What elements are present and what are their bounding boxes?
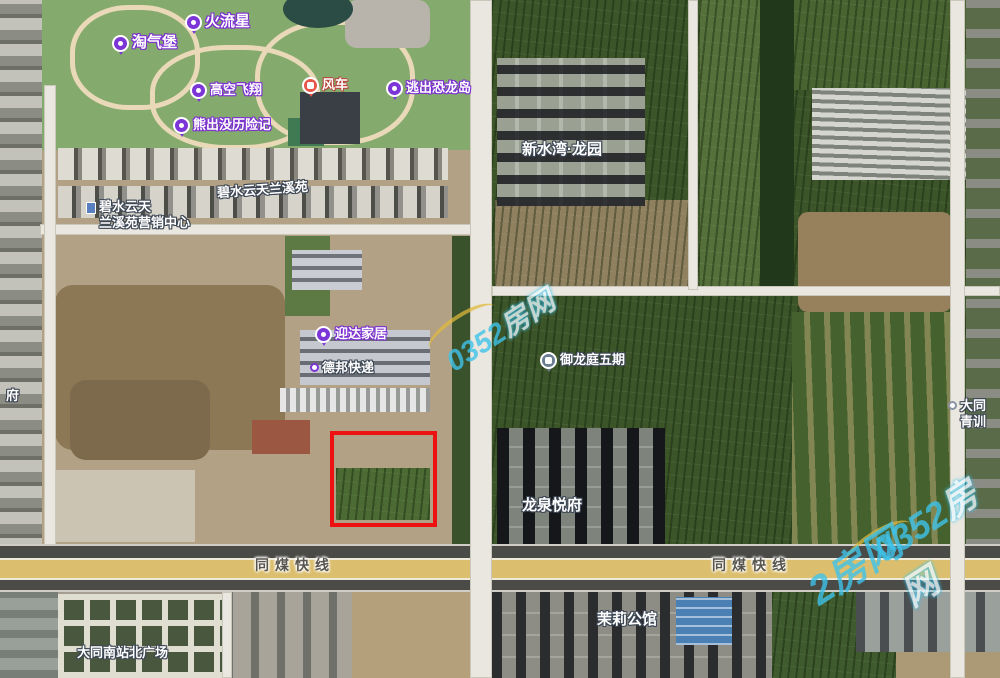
building-marker-icon (86, 202, 96, 214)
construction-pad (55, 470, 195, 542)
farm-tan-strip (495, 200, 690, 286)
poi-label: 迎达家居 (335, 326, 387, 342)
dot-marker-icon (948, 401, 957, 410)
pin-glyph (545, 357, 552, 364)
road-vertical-bottom (222, 592, 232, 678)
amusement-pin-icon (185, 14, 202, 31)
industrial-sheds (292, 250, 362, 290)
tree-line-left (452, 236, 472, 544)
building-pin-icon (302, 77, 319, 94)
poi-xinshuiwan-longyuan[interactable]: 新水湾·龙园 (522, 142, 602, 158)
region-longquan-block (497, 428, 665, 546)
poi-clipped-left-edge[interactable]: 府 (6, 388, 19, 404)
poi-label: 茉莉公馆 (597, 612, 657, 628)
pin-glyph (307, 82, 314, 89)
poi-label-line2: 青训 (960, 414, 986, 430)
poi-moli-mansion[interactable]: 茉莉公馆 (597, 612, 657, 628)
poi-yingda-furniture[interactable]: 迎达家居 (315, 326, 387, 343)
pin-glyph (392, 86, 397, 91)
amusement-pin-icon (112, 35, 129, 52)
bottom-dirt (352, 592, 470, 678)
bottom-right-buildings (856, 590, 1000, 652)
poi-huoliuxing[interactable]: 火流星 (185, 14, 250, 31)
farm-strips-se (792, 312, 952, 548)
greenhouse-band-right (812, 88, 966, 180)
bottom-right-dirt (896, 652, 1000, 678)
poi-label-line2: 兰溪苑营销中心 (99, 215, 190, 231)
poi-label: 德邦快递 (322, 360, 374, 376)
poi-taochukonglongdao[interactable]: 逃出恐龙岛 (386, 80, 471, 97)
poi-label: 逃出恐龙岛 (406, 80, 471, 96)
amusement-pin-icon (386, 80, 403, 97)
highlighted-parcel-rectangle[interactable] (330, 431, 437, 527)
pin-glyph (321, 332, 326, 337)
poi-label: 大同南站北广场 (77, 645, 168, 661)
poi-label: 龙泉悦府 (522, 498, 582, 514)
amusement-pin-icon (190, 82, 207, 99)
poi-taoqibao[interactable]: 淘气堡 (112, 35, 177, 52)
poi-datong-south-station-plaza[interactable]: 大同南站北广场 (77, 645, 168, 661)
poi-longquan-yuefu[interactable]: 龙泉悦府 (522, 498, 582, 514)
greenhouse-band-left (280, 388, 430, 412)
station-plaza-grid (58, 594, 223, 678)
farm-patch-ne (700, 0, 762, 290)
expressway-corridor (0, 544, 1000, 592)
poi-label: 府 (6, 388, 19, 404)
road-vertical-east (950, 0, 965, 678)
poi-datong-youth-training[interactable]: 大同 青训 (948, 398, 986, 430)
region-residential-row (58, 148, 448, 180)
poi-label: 新水湾·龙园 (522, 142, 602, 158)
pin-glyph (196, 88, 201, 93)
region-xinshuiwan-block (497, 58, 645, 206)
poi-label-line1: 大同 (960, 398, 986, 414)
poi-label: 熊出没历险记 (193, 117, 271, 133)
pin-glyph (179, 123, 184, 128)
poi-yulongting-phase5[interactable]: 御龙庭五期 (540, 352, 625, 369)
poi-label: 火流星 (205, 14, 250, 30)
poi-label: 淘气堡 (132, 35, 177, 51)
dot-marker-icon (310, 363, 319, 372)
poi-label: 御龙庭五期 (560, 352, 625, 368)
pin-glyph (118, 41, 123, 46)
poi-gaokongfeixiang[interactable]: 高空飞翔 (190, 82, 262, 99)
poi-debang-express[interactable]: 德邦快递 (310, 360, 374, 376)
road-vertical-main (470, 0, 492, 678)
satellite-map[interactable]: 淘气堡 火流星 高空飞翔 熊出没历险记 风车 逃出恐龙岛 碧水云天兰溪苑 碧水云… (0, 0, 1000, 678)
road-vertical-ne (688, 0, 698, 290)
amusement-pin-icon (173, 117, 190, 134)
park-castle-structure (345, 0, 430, 48)
dirt-patch-right (798, 212, 952, 312)
blue-roof-buildings (676, 597, 732, 645)
poi-label: 高空飞翔 (210, 82, 262, 98)
road-horizontal-mid-right (492, 286, 1000, 296)
region-east-edge (966, 0, 1000, 548)
home-pin-icon (315, 326, 332, 343)
expressway-label-right: 同煤快线 (712, 555, 792, 575)
expressway-label-left: 同煤快线 (255, 555, 335, 575)
red-roof-sheds (252, 420, 310, 454)
farm-patch-top-right (792, 0, 966, 90)
pin-glyph (191, 20, 196, 25)
region-left-city-strip (0, 0, 42, 560)
poi-label: 风车 (322, 77, 348, 93)
poi-label-line1: 碧水云天 (99, 199, 190, 215)
bottom-left-city (0, 592, 58, 678)
tree-band-center (760, 0, 794, 292)
poi-lanxiyuan-sales-center[interactable]: 碧水云天 兰溪苑营销中心 (86, 199, 190, 231)
road-vertical-left (44, 85, 56, 552)
vacant-dark-mound (70, 380, 210, 460)
bottom-mid-blocks (225, 592, 353, 678)
expressway-yellow-road (0, 558, 1000, 580)
building-pin-icon (540, 352, 557, 369)
poi-fengche[interactable]: 风车 (302, 77, 348, 94)
poi-xiongchumo[interactable]: 熊出没历险记 (173, 117, 271, 134)
